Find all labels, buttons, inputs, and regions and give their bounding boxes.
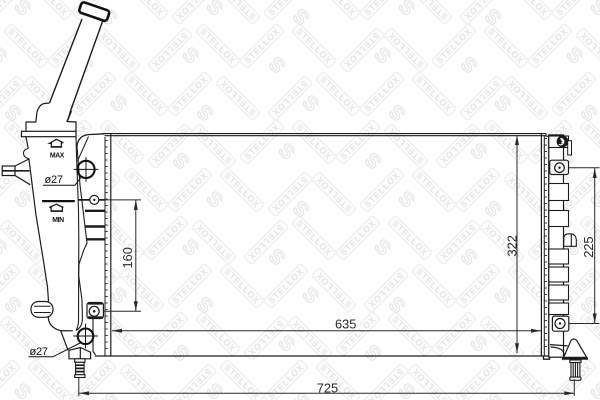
svg-text:725: 725 (317, 381, 338, 396)
svg-text:225: 225 (581, 236, 596, 257)
svg-text:MIN: MIN (52, 217, 64, 224)
svg-text:ø27: ø27 (30, 346, 48, 358)
svg-text:322: 322 (505, 235, 520, 256)
svg-text:635: 635 (335, 317, 356, 332)
svg-text:MAX: MAX (50, 152, 65, 159)
svg-text:ø27: ø27 (45, 174, 63, 186)
svg-text:160: 160 (120, 247, 135, 268)
